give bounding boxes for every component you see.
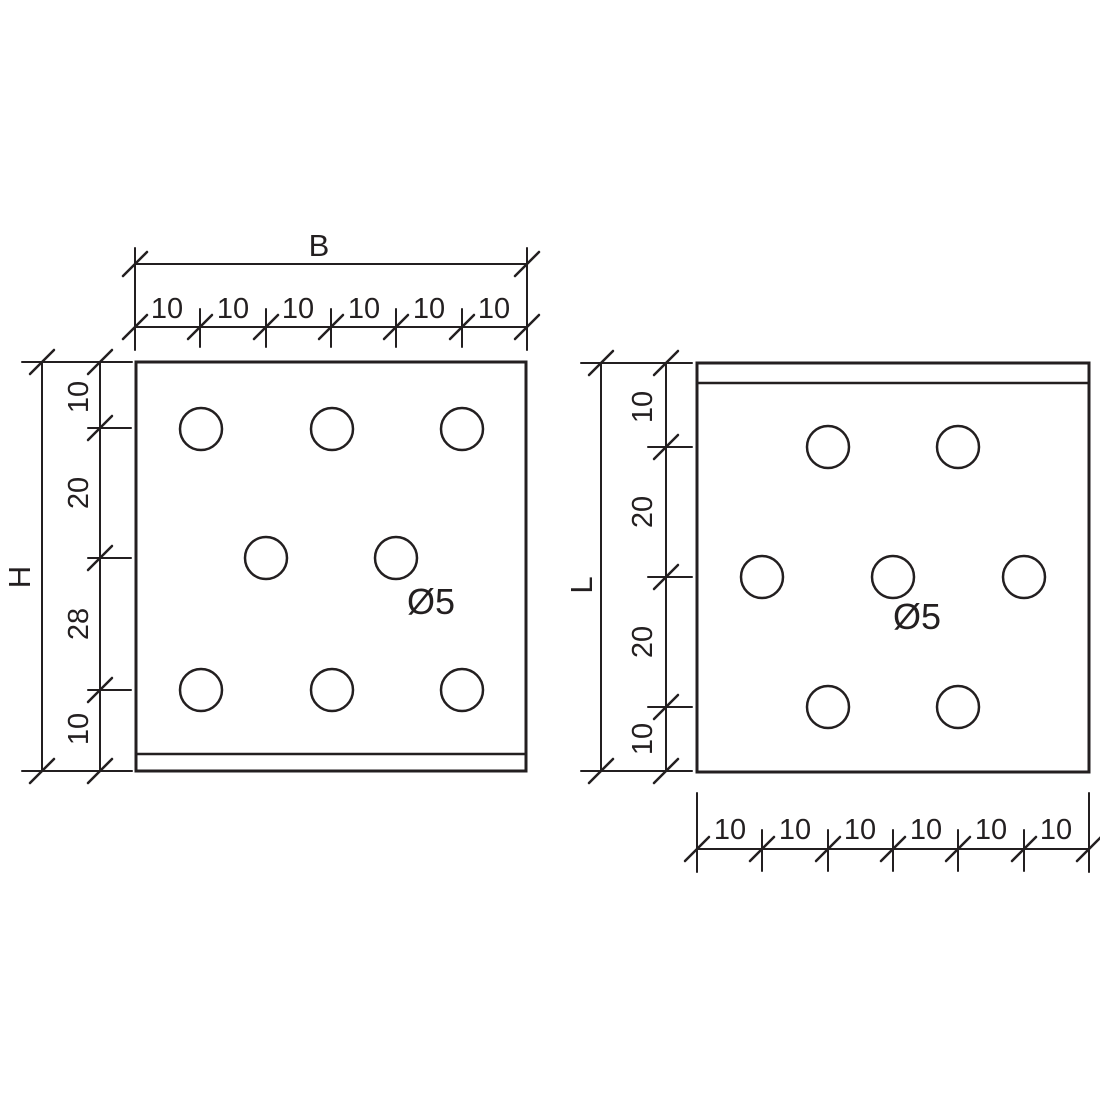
hole: [937, 686, 979, 728]
dim-label: 10: [63, 713, 95, 745]
drawing-page: Ø5 B 10 10 10 10 10 1: [0, 0, 1100, 1100]
right-view-holes: [741, 426, 1045, 728]
hole: [1003, 556, 1045, 598]
hole: [741, 556, 783, 598]
left-view-side-dimension: H 10 20 28 10: [2, 350, 132, 783]
overall-dim-label-H: H: [2, 566, 37, 588]
dim-label: 10: [217, 293, 249, 325]
overall-dim-label-L: L: [564, 576, 599, 593]
dim-label: 20: [627, 496, 659, 528]
hole: [441, 408, 483, 450]
dim-label: 10: [63, 381, 95, 413]
hole: [180, 669, 222, 711]
dim-label: 10: [282, 293, 314, 325]
dim-label: 10: [413, 293, 445, 325]
hole: [937, 426, 979, 468]
dim-label: 28: [63, 608, 95, 640]
left-view: Ø5 B 10 10 10 10 10 1: [2, 228, 539, 783]
left-view-top-dimension: B 10 10 10 10 10 10: [123, 228, 539, 350]
hole-diameter-label: Ø5: [893, 596, 941, 637]
hole: [441, 669, 483, 711]
hole: [807, 426, 849, 468]
technical-drawing-canvas: Ø5 B 10 10 10 10 10 1: [0, 0, 1100, 1100]
dim-label: 10: [844, 814, 876, 846]
hole: [872, 556, 914, 598]
hole: [807, 686, 849, 728]
dim-label: 10: [975, 814, 1007, 846]
dim-label: 10: [478, 293, 510, 325]
hole: [311, 669, 353, 711]
dim-label: 10: [779, 814, 811, 846]
hole: [311, 408, 353, 450]
dim-label: 10: [348, 293, 380, 325]
hole: [180, 408, 222, 450]
dim-label: 10: [910, 814, 942, 846]
right-view-side-dimension: L 10 20 20 10: [564, 351, 692, 783]
left-view-holes: [180, 408, 483, 711]
dim-label: 10: [151, 293, 183, 325]
dim-label: 10: [627, 723, 659, 755]
dim-label: 10: [1040, 814, 1072, 846]
right-view: Ø5 L 10 20 20 10: [564, 351, 1100, 872]
hole: [375, 537, 417, 579]
dim-label: 20: [63, 477, 95, 509]
dim-label: 10: [714, 814, 746, 846]
dim-label: 10: [627, 391, 659, 423]
hole: [245, 537, 287, 579]
right-view-bottom-dimension: 10 10 10 10 10 10: [685, 793, 1100, 872]
dim-label: 20: [627, 626, 659, 658]
hole-diameter-label: Ø5: [407, 581, 455, 622]
overall-dim-label-B: B: [309, 228, 330, 263]
